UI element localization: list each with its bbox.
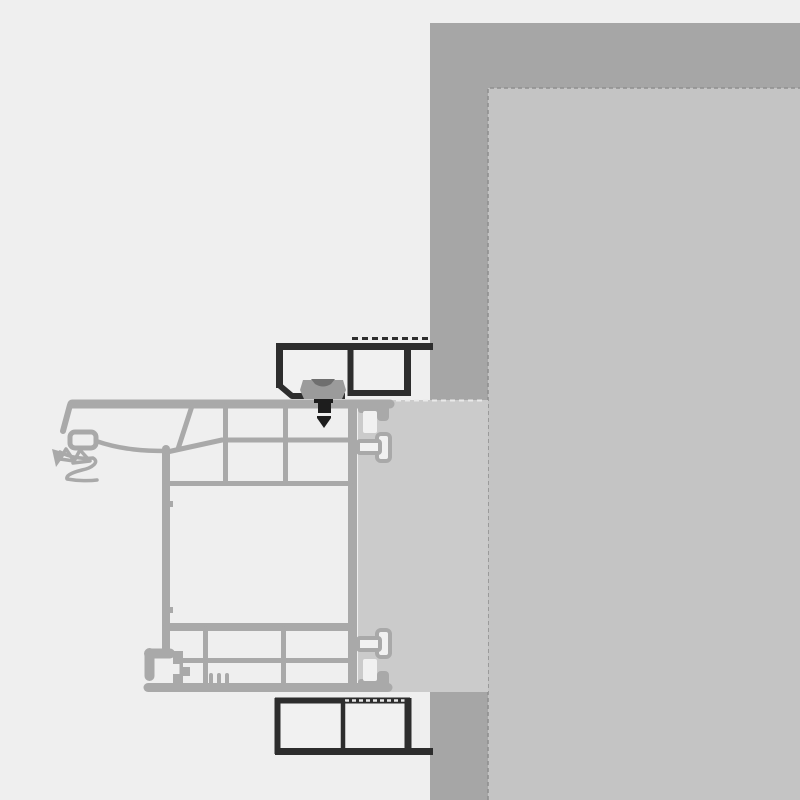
- bottom-tab-channel: [363, 659, 377, 681]
- foot-tooth: [183, 667, 190, 676]
- top-extension-profile: [276, 339, 433, 397]
- screw-shaft: [318, 399, 331, 413]
- bottom-tab-leg: [377, 671, 389, 685]
- left-wall-nub-top: [167, 501, 173, 507]
- anchor-bottom-stem: [358, 638, 380, 650]
- drawing-canvas: [0, 0, 800, 800]
- left-wall-nub-bottom: [167, 607, 173, 613]
- plaster-inner-surface: [488, 88, 800, 800]
- bottom-extension-profile: [275, 698, 433, 754]
- top-tab-channel: [363, 411, 377, 433]
- top-tab-leg: [377, 407, 389, 421]
- anchor-top-stem: [358, 441, 380, 453]
- foot-notch: [173, 664, 180, 674]
- cross-section-drawing: [0, 0, 800, 800]
